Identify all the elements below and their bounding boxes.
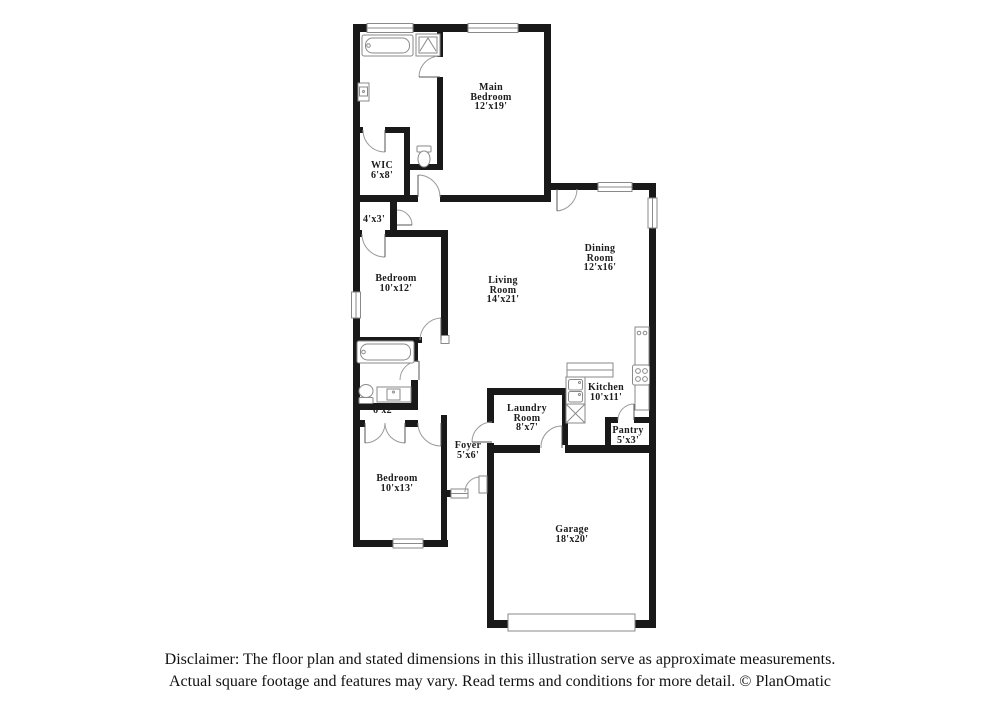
room-label-closet-6x2: 6'x2'	[373, 406, 395, 416]
room-label-pantry: Pantry 5'x3'	[612, 426, 643, 445]
toilet-icon	[417, 146, 431, 167]
window	[352, 292, 361, 318]
window	[648, 198, 657, 228]
wic-door	[363, 130, 385, 152]
bedroom2-door	[418, 423, 441, 446]
room-label-garage: Garage 18'x20'	[555, 525, 588, 544]
hall-opening-cap	[441, 336, 449, 344]
disclaimer-line-2: Actual square footage and features may v…	[0, 671, 1000, 693]
bathtub-icon	[362, 35, 413, 56]
kitchen-counter	[567, 363, 613, 377]
room-label-foyer: Foyer 5'x6'	[455, 441, 482, 460]
room-label-dining-room: Dining Room 12'x16'	[578, 244, 622, 273]
pantry-door	[618, 404, 634, 420]
bedroom1-closet-door	[362, 234, 385, 257]
window	[367, 24, 413, 33]
linen-closet-door	[397, 210, 412, 225]
room-label-laundry-room: Laundry Room 8'x7'	[500, 404, 554, 433]
vanity-sink-icon	[358, 83, 369, 101]
cooktop-icon	[633, 365, 650, 385]
shower-icon	[416, 34, 440, 56]
kitchen-sink-icon	[566, 377, 585, 404]
dining-back-door	[557, 189, 577, 211]
dishwasher-icon	[566, 404, 585, 423]
room-label-kitchen: Kitchen 10'x11'	[588, 383, 624, 402]
window	[598, 183, 632, 192]
room-label-closet-4x3: 4'x3'	[363, 215, 385, 225]
disclaimer-line-1: Disclaimer: The floor plan and stated di…	[0, 649, 1000, 671]
toilet-icon	[359, 385, 373, 404]
disclaimer: Disclaimer: The floor plan and stated di…	[0, 649, 1000, 693]
room-label-living-room: Living Room 14'x21'	[481, 276, 525, 305]
bathtub-icon	[357, 341, 414, 363]
main-bath-door	[419, 56, 440, 77]
room-label-main-bedroom: Main Bedroom 12'x19'	[464, 83, 518, 112]
room-label-bedroom-1: Bedroom 10'x12'	[375, 274, 416, 293]
bedroom1-door	[420, 318, 441, 340]
window	[468, 24, 518, 33]
laundry-hall-door	[472, 422, 492, 442]
bath2-door	[400, 361, 419, 380]
floor-plan-page: Main Bedroom 12'x19' WIC 6'x8' 4'x3' Bed…	[0, 0, 1000, 727]
garage-door	[508, 614, 635, 631]
vanity-sink-icon	[377, 387, 411, 402]
suite-hall-door	[418, 175, 440, 197]
walls	[353, 24, 656, 628]
window	[393, 539, 423, 548]
room-label-bedroom-2: Bedroom 10'x13'	[376, 474, 417, 493]
closet6x2-double-doors	[365, 423, 405, 443]
room-label-wic: WIC 6'x8'	[371, 161, 393, 180]
